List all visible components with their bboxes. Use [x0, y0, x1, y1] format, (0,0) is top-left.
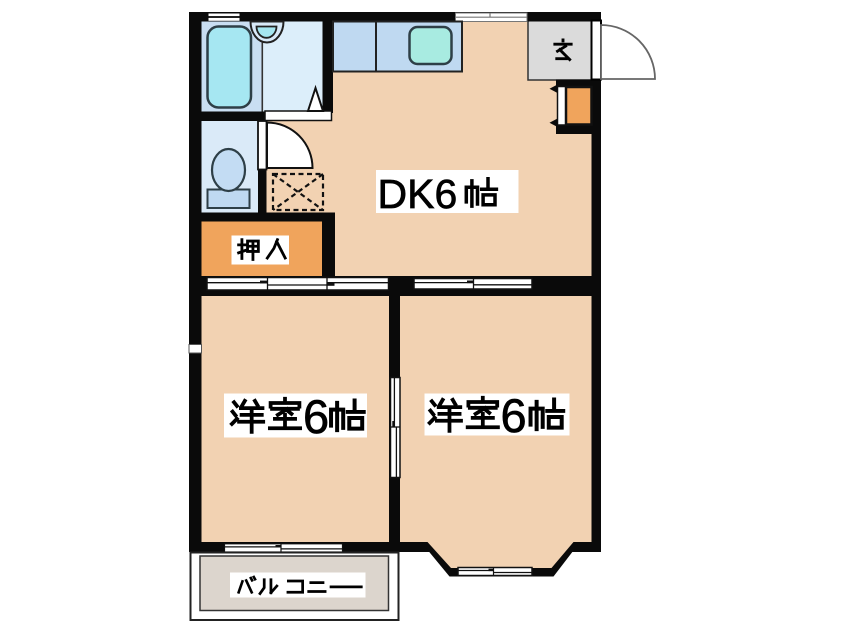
svg-text:6: 6	[501, 389, 527, 442]
svg-text:6: 6	[303, 390, 329, 443]
svg-text:DK6: DK6	[378, 171, 458, 217]
